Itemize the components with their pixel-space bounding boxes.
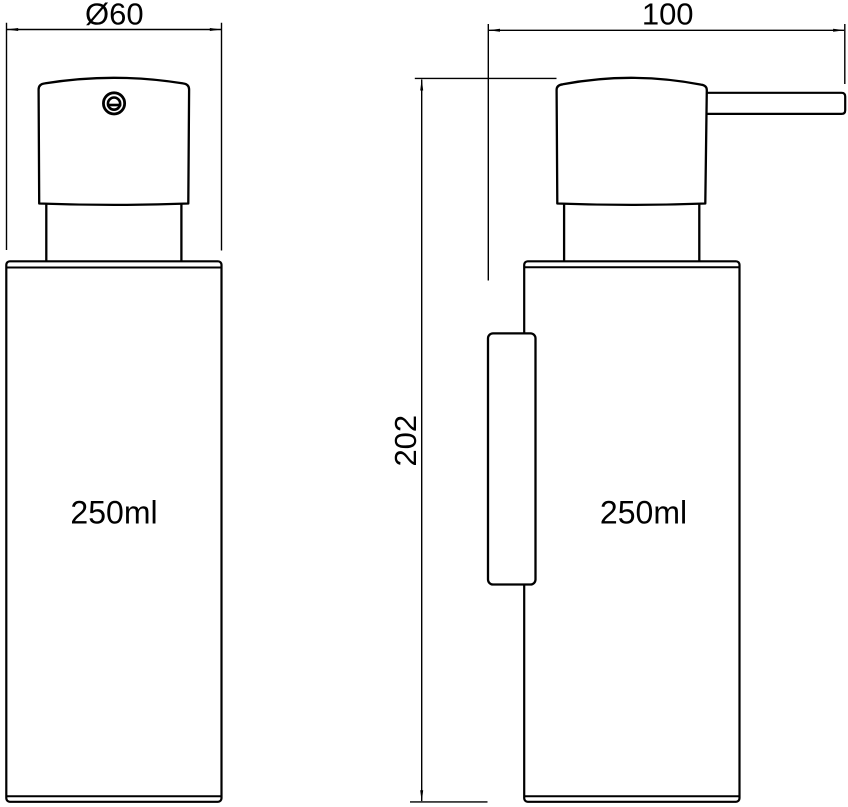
svg-text:202: 202 — [388, 415, 423, 467]
svg-text:250ml: 250ml — [70, 494, 157, 530]
svg-text:100: 100 — [642, 0, 694, 31]
svg-text:250ml: 250ml — [600, 494, 687, 530]
svg-text:Ø60: Ø60 — [85, 0, 144, 31]
